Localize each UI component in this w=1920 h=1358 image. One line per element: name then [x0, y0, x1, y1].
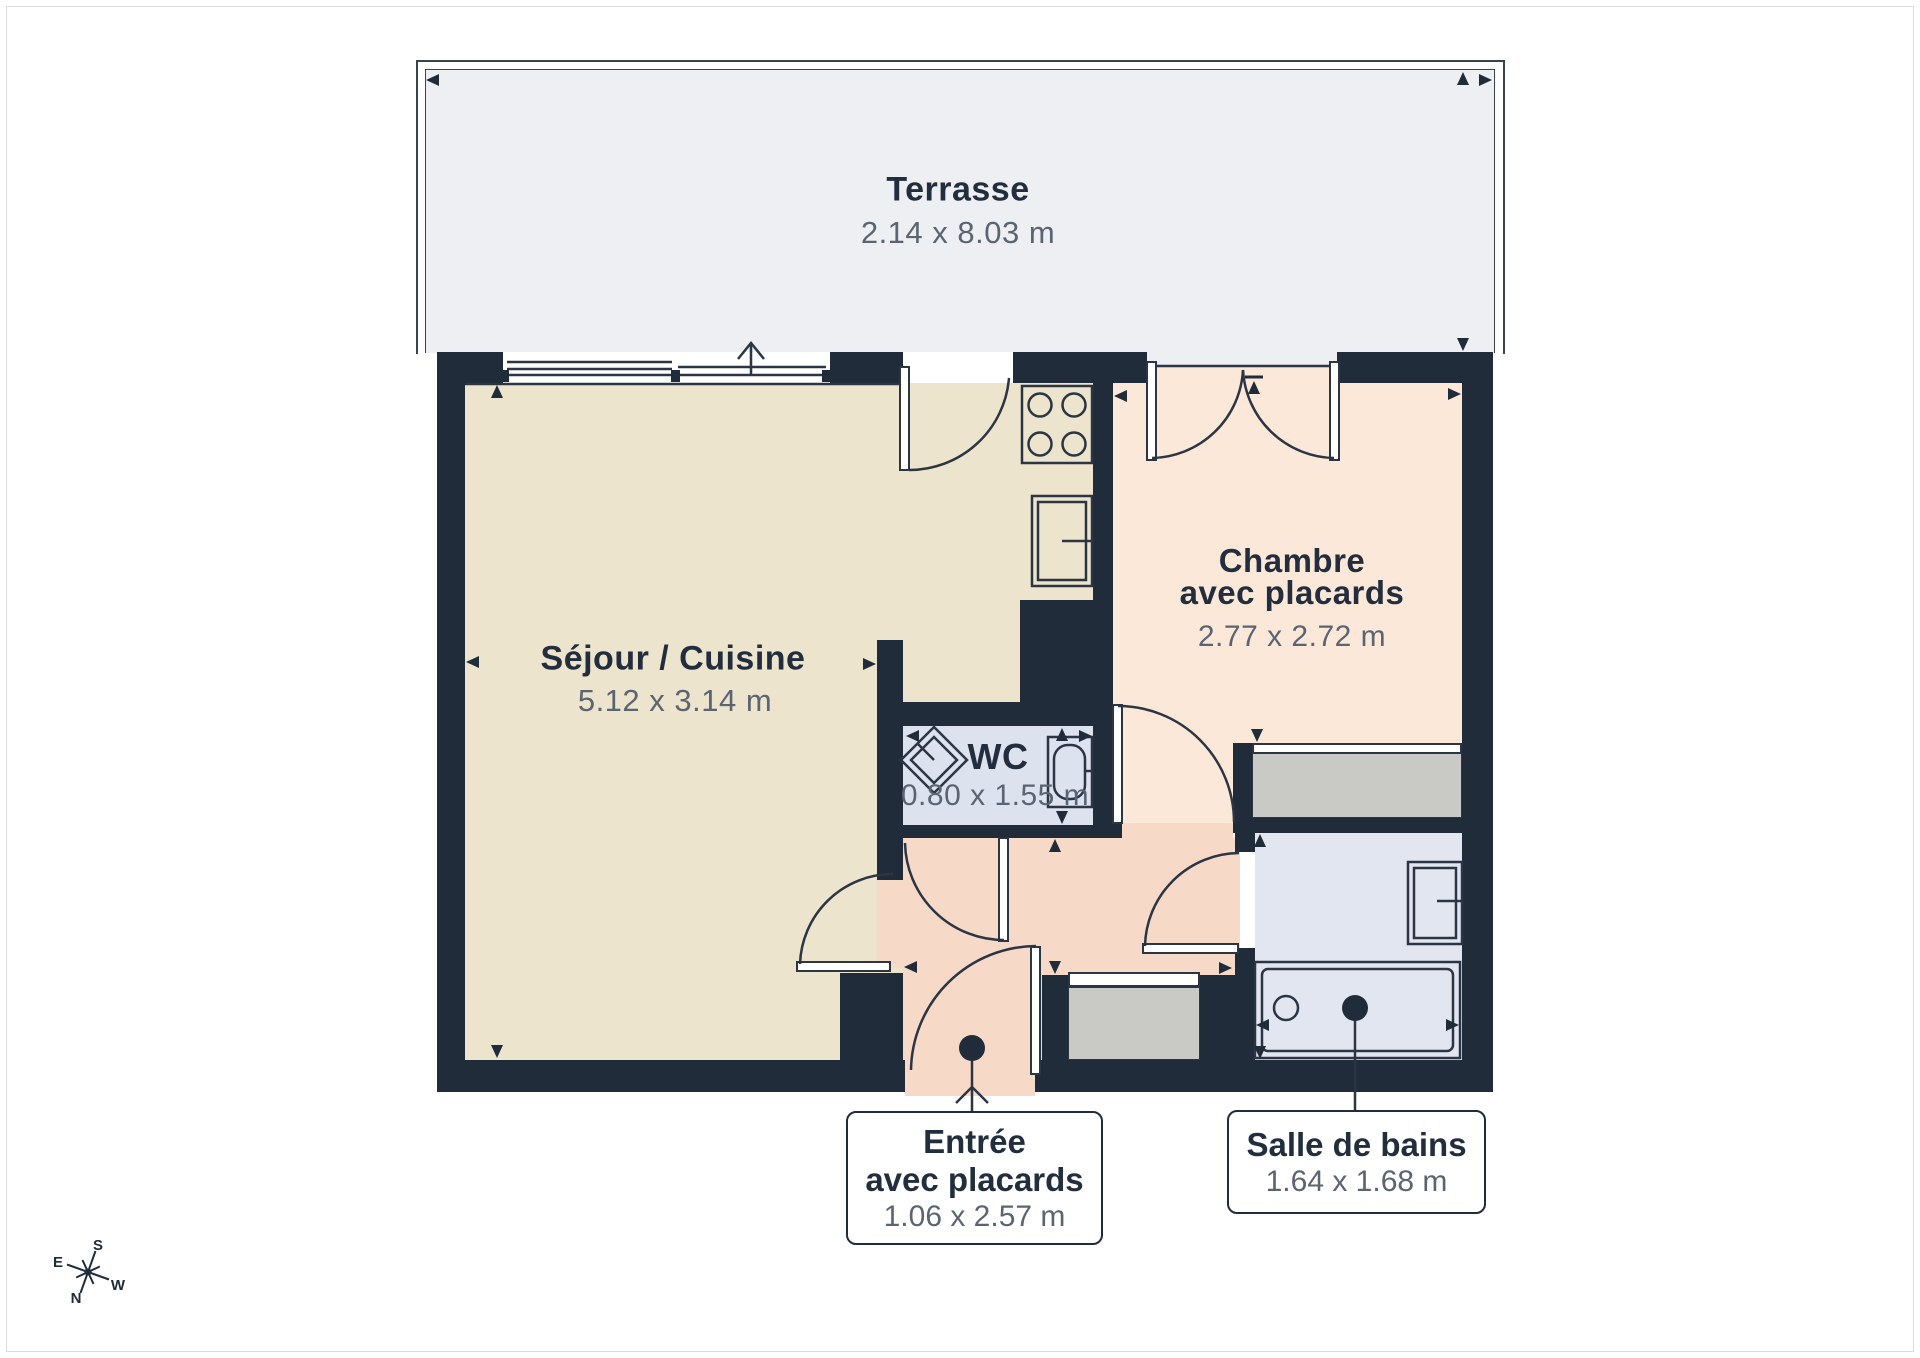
wall-bath-left-top — [1235, 833, 1255, 852]
terrace-floor — [425, 69, 1495, 353]
floor-plan: S E W N Terrasse 2.14 x 8.03 m Séjour / … — [0, 0, 1920, 1358]
terrasse-dims: 2.14 x 8.03 m — [861, 215, 1055, 251]
front-doorway-floor — [905, 1060, 1035, 1096]
wall-bottom-right — [1035, 1060, 1493, 1092]
wall-left — [437, 352, 465, 1092]
kitchen-door-opening — [903, 352, 1013, 383]
terrasse-label: Terrasse — [886, 171, 1029, 210]
wall-closet-bottom — [1233, 818, 1462, 833]
entree-label-2: avec placards — [865, 1161, 1083, 1198]
wall-kitchen-block — [1020, 600, 1093, 705]
entree-closet — [1068, 987, 1200, 1060]
entree-floor — [903, 838, 1042, 1060]
hall-floor — [1042, 838, 1240, 975]
terrace-doors-opening — [1147, 352, 1337, 366]
wall-bottom-left — [437, 1060, 905, 1092]
entree-label-box: Entrée avec placards 1.06 x 2.57 m — [846, 1111, 1103, 1245]
wall-kitchen-chambre — [1093, 383, 1113, 838]
chambre-doorway-floor — [1122, 823, 1233, 838]
wc-dims: 0.80 x 1.55 m — [901, 779, 1089, 813]
wall-entree-closet-left — [1042, 975, 1068, 1060]
wall-right — [1462, 352, 1493, 1092]
sliding-window-opening — [503, 352, 830, 383]
chambre-dims: 2.77 x 2.72 m — [1198, 620, 1386, 654]
terrace-doors-threshold — [1147, 366, 1337, 383]
sejour-dims: 5.12 x 3.14 m — [578, 683, 772, 719]
salle-de-bains-label: Salle de bains — [1246, 1126, 1466, 1163]
wall-wc-left — [877, 640, 903, 880]
salle-de-bains-dims: 1.64 x 1.68 m — [1266, 1164, 1448, 1199]
wall-top-3 — [1013, 352, 1147, 383]
bathroom-floor — [1255, 833, 1462, 1060]
wall-entree-closet-right — [1200, 975, 1240, 1060]
chambre-closet — [1252, 753, 1462, 818]
wall-wc-bottom — [877, 825, 1093, 838]
wall-top-2 — [830, 352, 903, 383]
chambre-label-2: avec placards — [1180, 574, 1405, 612]
wc-label: WC — [968, 736, 1029, 778]
wall-wc-top — [877, 702, 1093, 726]
entree-label: Entrée — [923, 1123, 1026, 1160]
sejour-entree-doorway-floor — [877, 880, 903, 968]
entree-closet-doors — [1068, 972, 1200, 987]
wall-chambre-south — [1093, 823, 1122, 838]
entree-dims: 1.06 x 2.57 m — [884, 1199, 1066, 1234]
sejour-label: Séjour / Cuisine — [541, 640, 806, 679]
wall-sejour-stub — [840, 973, 903, 1060]
salle-de-bains-label-box: Salle de bains 1.64 x 1.68 m — [1227, 1110, 1486, 1214]
